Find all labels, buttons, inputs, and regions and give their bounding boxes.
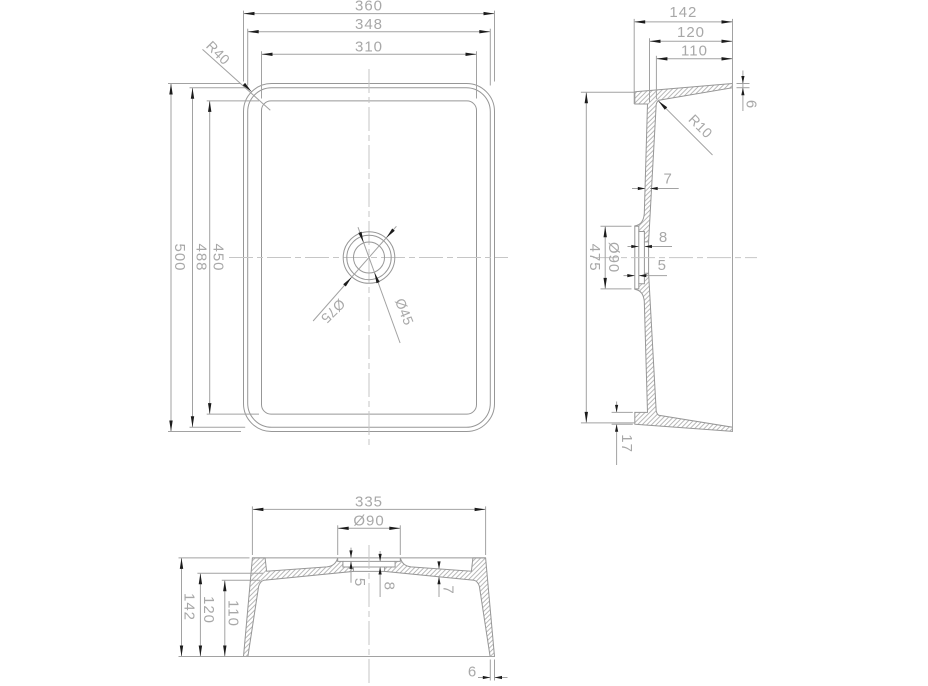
svg-text:6: 6 — [743, 100, 760, 109]
svg-text:110: 110 — [225, 600, 242, 627]
svg-text:142: 142 — [669, 4, 697, 21]
svg-text:120: 120 — [200, 596, 217, 624]
svg-text:17: 17 — [618, 434, 635, 453]
svg-text:488: 488 — [193, 243, 210, 271]
svg-text:348: 348 — [355, 16, 383, 33]
svg-text:5: 5 — [658, 257, 667, 274]
svg-text:120: 120 — [677, 24, 705, 41]
svg-text:110: 110 — [681, 42, 708, 59]
svg-text:310: 310 — [355, 38, 383, 55]
svg-text:R10: R10 — [685, 111, 715, 141]
svg-text:142: 142 — [180, 593, 197, 621]
svg-text:360: 360 — [355, 0, 383, 15]
svg-text:Ø45: Ø45 — [392, 296, 417, 328]
svg-text:6: 6 — [468, 664, 477, 681]
svg-text:5: 5 — [351, 578, 368, 587]
svg-text:335: 335 — [355, 494, 383, 511]
svg-text:Ø75: Ø75 — [318, 296, 349, 327]
svg-text:500: 500 — [171, 243, 188, 271]
svg-text:7: 7 — [440, 585, 457, 594]
svg-text:450: 450 — [210, 243, 227, 271]
svg-text:Ø90: Ø90 — [605, 242, 622, 273]
svg-text:8: 8 — [659, 229, 668, 246]
svg-text:R40: R40 — [203, 38, 233, 68]
svg-text:Ø90: Ø90 — [353, 512, 384, 529]
svg-text:8: 8 — [380, 582, 397, 591]
svg-text:475: 475 — [586, 244, 603, 272]
svg-text:7: 7 — [664, 171, 673, 188]
